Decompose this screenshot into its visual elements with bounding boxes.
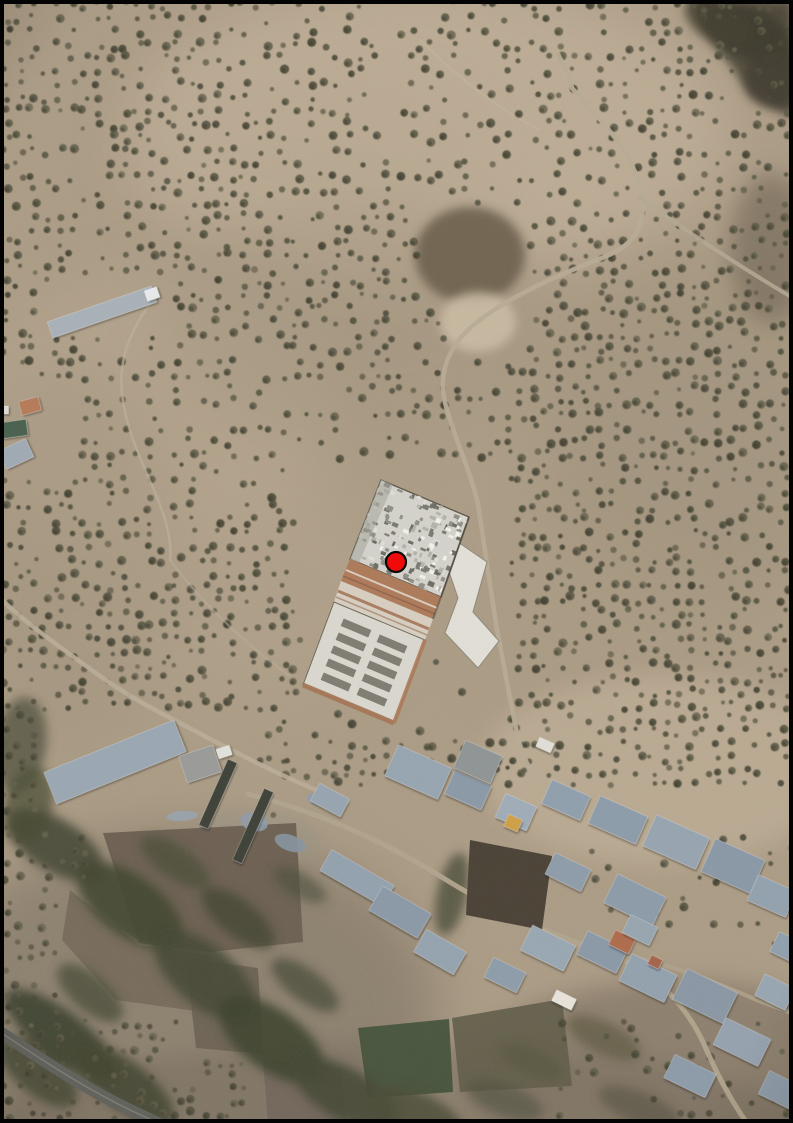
document-page (0, 0, 793, 1123)
aerial-map-image (0, 0, 793, 1123)
map-frame (0, 0, 793, 1123)
vignette-overlay (0, 0, 793, 1123)
